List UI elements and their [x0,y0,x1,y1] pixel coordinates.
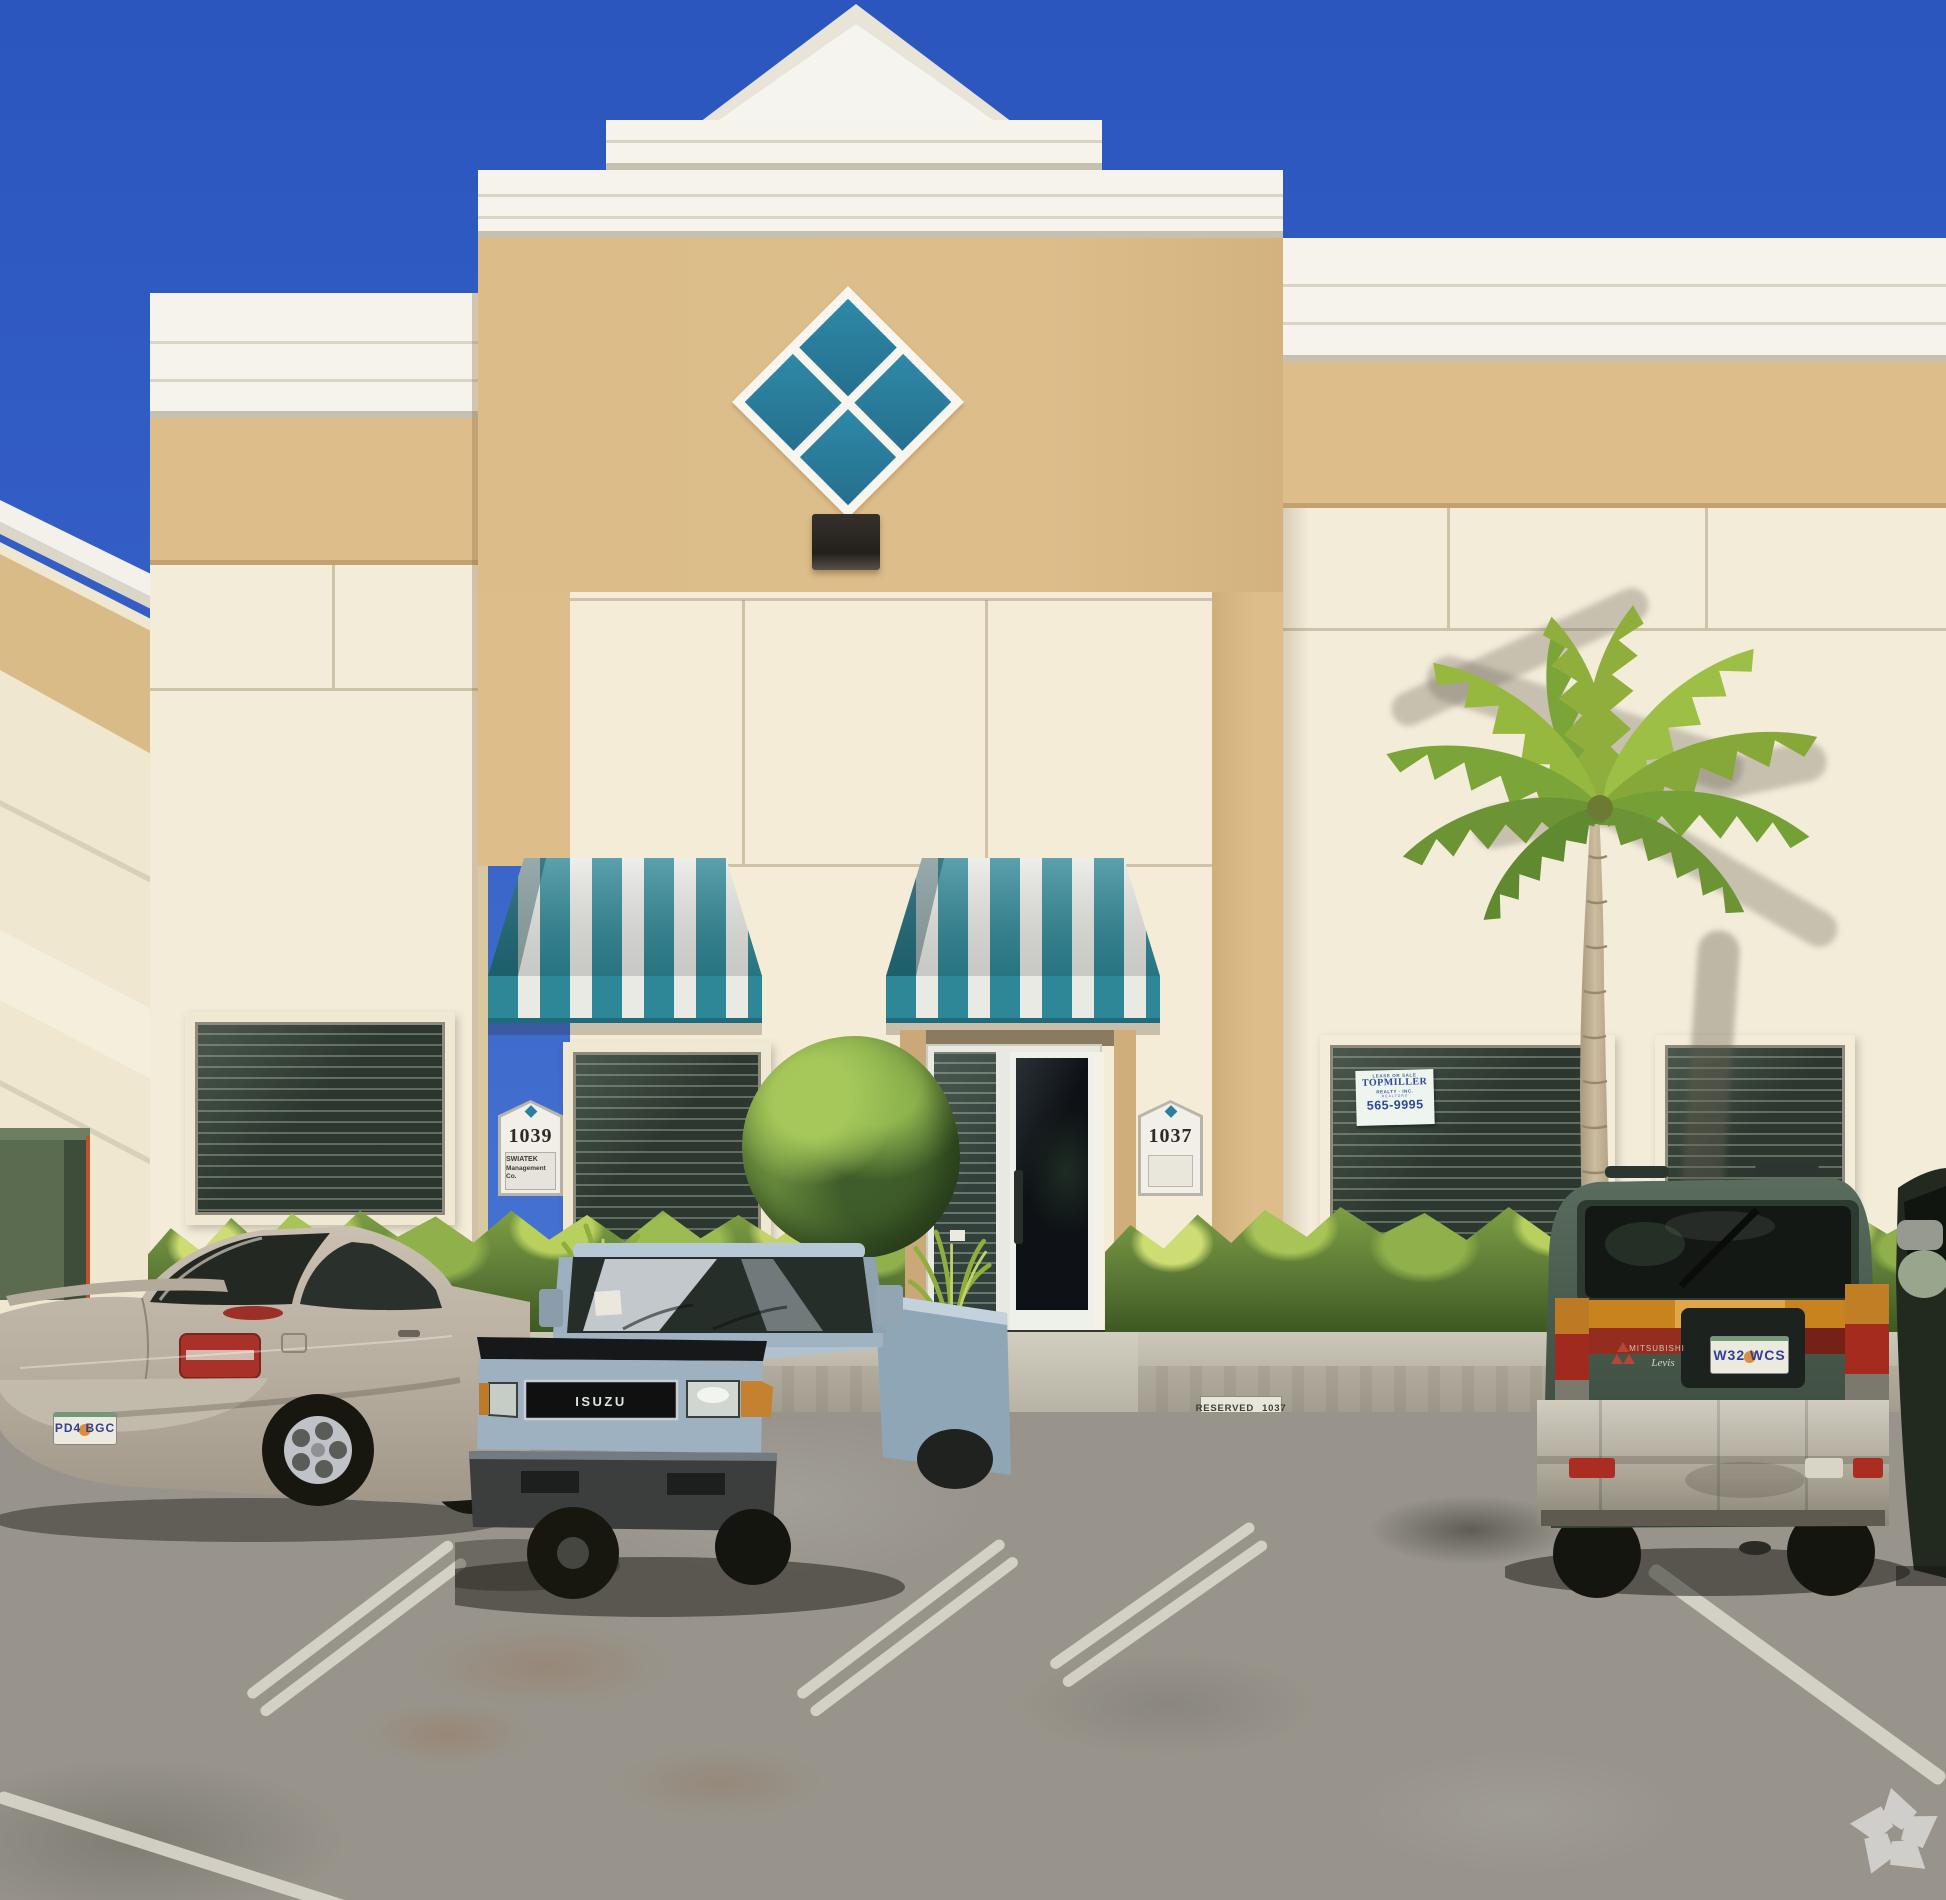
roof-rack-bar [1605,1166,1669,1178]
wall-light-fixture [812,514,880,570]
cornice-shadow [1283,355,1946,362]
cornice-groove [1283,322,1946,325]
cornice-groove [150,341,478,344]
mitsubishi-van: MITSUBISHI Levis [1505,1158,1920,1608]
wall-joint [150,688,478,691]
cornice-shadow [478,231,1283,238]
watermark-recycle-pinwheel-icon [1845,1782,1945,1882]
windshield-paper [594,1290,622,1316]
rim-slot [292,1429,310,1447]
pediment-inner [716,24,996,122]
cornice-groove [150,379,478,382]
reflector-right [1853,1458,1883,1478]
glass-glare [1665,1211,1775,1241]
unit-number-1037: 1037 [1141,1125,1200,1148]
plate-text: W32 WCS [1711,1337,1788,1373]
bumper-dent [1685,1462,1805,1498]
unit-number-1039: 1039 [501,1125,560,1148]
cornice-groove [606,140,1102,143]
awning-valance [488,976,762,1022]
left-wing [150,293,478,1340]
pinwheel-petals [1847,1788,1945,1882]
pilaster-cast-shadow [1283,508,1309,1340]
tenant-line: SWIATEK [506,1156,555,1165]
door-handle [398,1330,420,1337]
cornice-groove [478,216,1283,219]
license-plate-sedan: PD4 BGC [53,1412,117,1445]
photo-commercial-building-exterior: 1039 SWIATEK Management Co. 1037 LEASE O… [0,0,1946,1900]
rim-slot [292,1453,310,1471]
spoiler-brake-light [223,1306,283,1320]
cornice-groove [1283,284,1946,287]
bumper-recess [667,1473,725,1495]
mirror-right [875,1285,903,1325]
plate-text: PD4 BGC [54,1413,116,1444]
cornice-shadow [150,411,478,418]
car-shadow [0,1498,508,1542]
license-plate-van: W32 WCS [1710,1336,1789,1374]
wall-joint [985,600,988,864]
corner-lamp-right [741,1381,773,1417]
hub-cap [311,1443,325,1457]
tower-cornice-lower [478,170,1283,238]
make-badge: MITSUBISHI [1629,1344,1685,1353]
tower-left-tan-band [478,592,570,866]
tenant-nameplate: SWIATEK Management Co. [505,1152,556,1190]
front-wheel-right [715,1509,791,1585]
palm-crown [1381,601,1826,939]
hood-deflector [477,1337,767,1361]
cornice-shadow [606,163,1102,170]
tail-light-left [1555,1298,1589,1410]
wall-joint [570,598,1212,601]
hub [557,1537,589,1569]
tower-cornice-upper [606,120,1102,170]
awning-left [488,858,762,1038]
utility-box-top [0,1128,90,1140]
awning-binding [488,1018,762,1023]
left-wing-window [185,1012,455,1225]
right-wing-cornice [1283,238,1946,362]
cab-roof [573,1243,865,1259]
rim-slot [315,1422,333,1440]
rim-slot [315,1460,333,1478]
reverse-lamp [1805,1458,1843,1478]
wall-joint [332,565,335,688]
blank-panel [1148,1155,1193,1187]
door-jamb-lit [1094,1052,1104,1336]
bumper-underside [1541,1510,1885,1526]
sedan-car [0,1218,530,1548]
model-badge: Levis [1650,1357,1674,1369]
diamond-logo-icon [1256,1406,1260,1410]
exhaust [1739,1541,1771,1555]
wall-joint [742,600,745,864]
tenant-line: Management [506,1165,555,1173]
left-wing-tan-band [150,418,478,565]
awning-binding [886,1018,1160,1023]
tail-light-right [1845,1284,1889,1404]
rear-wheel-arch [917,1429,993,1489]
unit-1037-sign: 1037 [1138,1100,1203,1196]
mirror-left [539,1289,563,1327]
reflector-left [1569,1458,1615,1478]
right-wing-tan-band [1283,362,1946,508]
corner-lamp-left [479,1383,489,1415]
tenant-line: Co. [506,1173,555,1181]
grille-badge: ISUZU [575,1394,627,1409]
bumper-recess [521,1471,579,1493]
roof-rack-bar [1755,1164,1819,1176]
unit-1039-sign: 1039 SWIATEK Management Co. [498,1100,563,1196]
headlight-glint [697,1387,729,1403]
isuzu-pickup: ISUZU [455,1235,1030,1635]
rim-slot [329,1441,347,1459]
headlight-left [489,1383,517,1417]
cornice-groove [478,194,1283,197]
crown-center [1587,795,1613,821]
awning-cast-shadow [488,1023,762,1035]
awning-right [886,858,1160,1038]
left-wing-cornice [150,293,478,418]
awning-valance [886,976,1160,1022]
